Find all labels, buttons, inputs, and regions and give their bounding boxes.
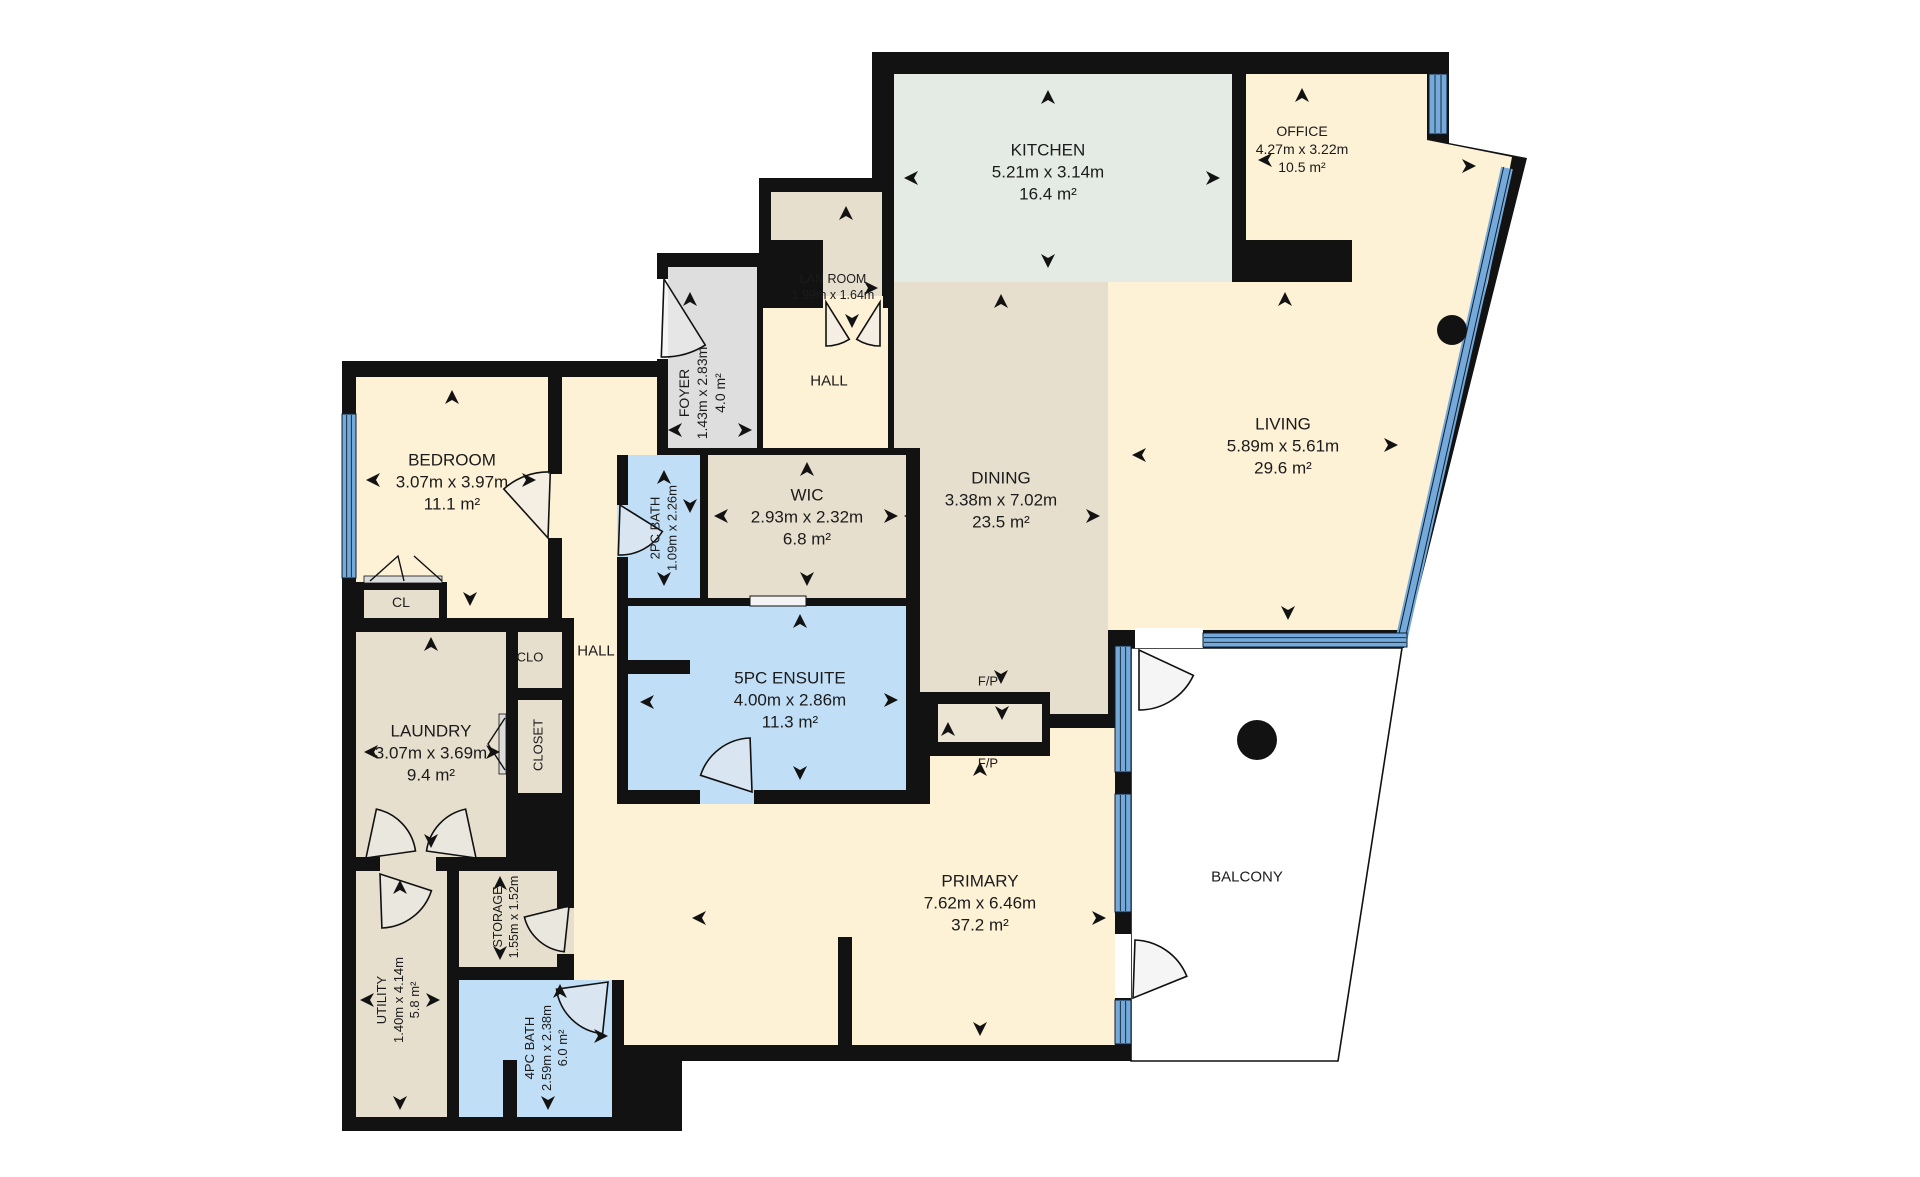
room-dims: 3.07m x 3.69m (375, 742, 487, 764)
room-name: OFFICE (1256, 123, 1349, 141)
room-label-hall-upper: HALL (810, 371, 848, 390)
room-dims: 2.59m x 2.38m (539, 1005, 556, 1091)
window (342, 414, 356, 578)
room-dims: 2.93m x 2.32m (751, 506, 863, 528)
room-area: 16.4 m² (992, 183, 1104, 205)
room-name: HALL (577, 641, 615, 660)
room-label-utility: UTILITY 1.40m x 4.14m 5.8 m² (374, 957, 424, 1043)
ensuite-wall-stub (628, 660, 690, 674)
room-name: KITCHEN (992, 139, 1104, 161)
room-area: 6.0 m² (555, 1005, 572, 1091)
room-name: LAN ROOM (792, 271, 875, 287)
room-area: 11.3 m² (734, 711, 846, 733)
room-name: FOYER (676, 347, 694, 440)
wic-slider-door (750, 596, 806, 606)
room-lan-floor-a (771, 192, 882, 240)
living-balcony-opening (1135, 628, 1203, 648)
room-label-living: LIVING 5.89m x 5.61m 29.6 m² (1227, 413, 1339, 478)
primary-balcony-opening (1115, 934, 1131, 998)
room-name: BALCONY (1211, 867, 1283, 886)
room-name: LIVING (1227, 413, 1339, 435)
room-name: 2PC BATH (647, 485, 664, 571)
room-area: 4.0 m² (712, 347, 730, 440)
window (1203, 633, 1407, 647)
bath-wall-stub (503, 1060, 517, 1117)
room-name: 4PC BATH (522, 1005, 539, 1091)
floor-plan: KITCHEN 5.21m x 3.14m 16.4 m² OFFICE 4.2… (0, 0, 1920, 1177)
room-name: BEDROOM (396, 449, 508, 471)
room-label-lan-room: LAN ROOM 1.99m x 1.64m (792, 271, 875, 303)
room-dims: 3.38m x 7.02m (945, 489, 1057, 511)
room-dims: 1.40m x 4.14m (391, 957, 408, 1043)
room-name: UTILITY (374, 957, 391, 1043)
room-label-wic: WIC 2.93m x 2.32m 6.8 m² (751, 484, 863, 549)
room-label-foyer: FOYER 1.43m x 2.83m 4.0 m² (676, 347, 730, 440)
room-name: HALL (810, 371, 848, 390)
room-label-storage: STORAGE 1.55m x 1.52m (490, 876, 522, 959)
room-name: LAUNDRY (375, 720, 487, 742)
room-dims: 1.09m x 2.26m (664, 485, 681, 571)
room-name: F/P (978, 756, 998, 773)
room-label-dining: DINING 3.38m x 7.02m 23.5 m² (945, 467, 1057, 532)
fireplace-inner (938, 704, 1042, 742)
fireplace-thin-wall (1050, 714, 1115, 728)
room-label-office: OFFICE 4.27m x 3.22m 10.5 m² (1256, 123, 1349, 177)
room-dims: 5.21m x 3.14m (992, 161, 1104, 183)
room-dims: 4.00m x 2.86m (734, 689, 846, 711)
room-dims: 3.07m x 3.97m (396, 471, 508, 493)
room-name: STORAGE (490, 876, 506, 959)
fireplace-wall-chunk (906, 692, 930, 756)
room-area: 6.8 m² (751, 528, 863, 550)
room-dims: 4.27m x 3.22m (1256, 141, 1349, 159)
room-area: 23.5 m² (945, 511, 1057, 533)
room-area: 29.6 m² (1227, 457, 1339, 479)
room-name: CLO (517, 650, 544, 667)
room-area: 10.5 m² (1256, 159, 1349, 177)
floor-plan-drawing (0, 0, 1920, 1177)
column-balcony (1237, 720, 1277, 760)
balcony-floor (1131, 648, 1402, 1061)
room-name: 5PC ENSUITE (734, 667, 846, 689)
room-label-bedroom: BEDROOM 3.07m x 3.97m 11.1 m² (396, 449, 508, 514)
room-dims: 1.43m x 2.83m (694, 347, 712, 440)
room-dims: 1.99m x 1.64m (792, 287, 875, 303)
room-dims: 5.89m x 5.61m (1227, 435, 1339, 457)
ensuite-door-opening (700, 790, 754, 804)
room-label-primary: PRIMARY 7.62m x 6.46m 37.2 m² (924, 870, 1036, 935)
room-label-2pc-bath: 2PC BATH 1.09m x 2.26m (647, 485, 680, 571)
room-name: CL (392, 594, 410, 612)
room-area: 5.8 m² (407, 957, 424, 1043)
label-fireplace-lower: F/P (978, 756, 998, 773)
primary-wall-stub (838, 937, 852, 1045)
room-name: WIC (751, 484, 863, 506)
room-label-hall-lower: HALL (577, 641, 615, 660)
room-area: 9.4 m² (375, 764, 487, 786)
room-label-laundry: LAUNDRY 3.07m x 3.69m 9.4 m² (375, 720, 487, 785)
room-label-4pc-bath: 4PC BATH 2.59m x 2.38m 6.0 m² (522, 1005, 572, 1091)
window (1115, 794, 1131, 912)
room-area: 37.2 m² (924, 914, 1036, 936)
room-label-kitchen: KITCHEN 5.21m x 3.14m 16.4 m² (992, 139, 1104, 204)
room-name: PRIMARY (924, 870, 1036, 892)
room-dims: 1.55m x 1.52m (506, 876, 522, 959)
room-name: DINING (945, 467, 1057, 489)
window (1115, 646, 1131, 772)
utility-door-opening (380, 857, 436, 871)
column-living (1437, 315, 1467, 345)
room-label-balcony: BALCONY (1211, 867, 1283, 886)
window (1115, 1000, 1131, 1044)
room-dims: 7.62m x 6.46m (924, 892, 1036, 914)
room-label-closet: CLOSET (531, 719, 548, 771)
room-name: CLOSET (531, 719, 548, 771)
room-label-ensuite: 5PC ENSUITE 4.00m x 2.86m 11.3 m² (734, 667, 846, 732)
label-fireplace-upper: F/P (978, 674, 998, 691)
room-area: 11.1 m² (396, 493, 508, 515)
room-label-clo: CLO (517, 650, 544, 667)
window (1429, 74, 1447, 134)
room-label-cl: CL (392, 594, 410, 612)
room-name: F/P (978, 674, 998, 691)
